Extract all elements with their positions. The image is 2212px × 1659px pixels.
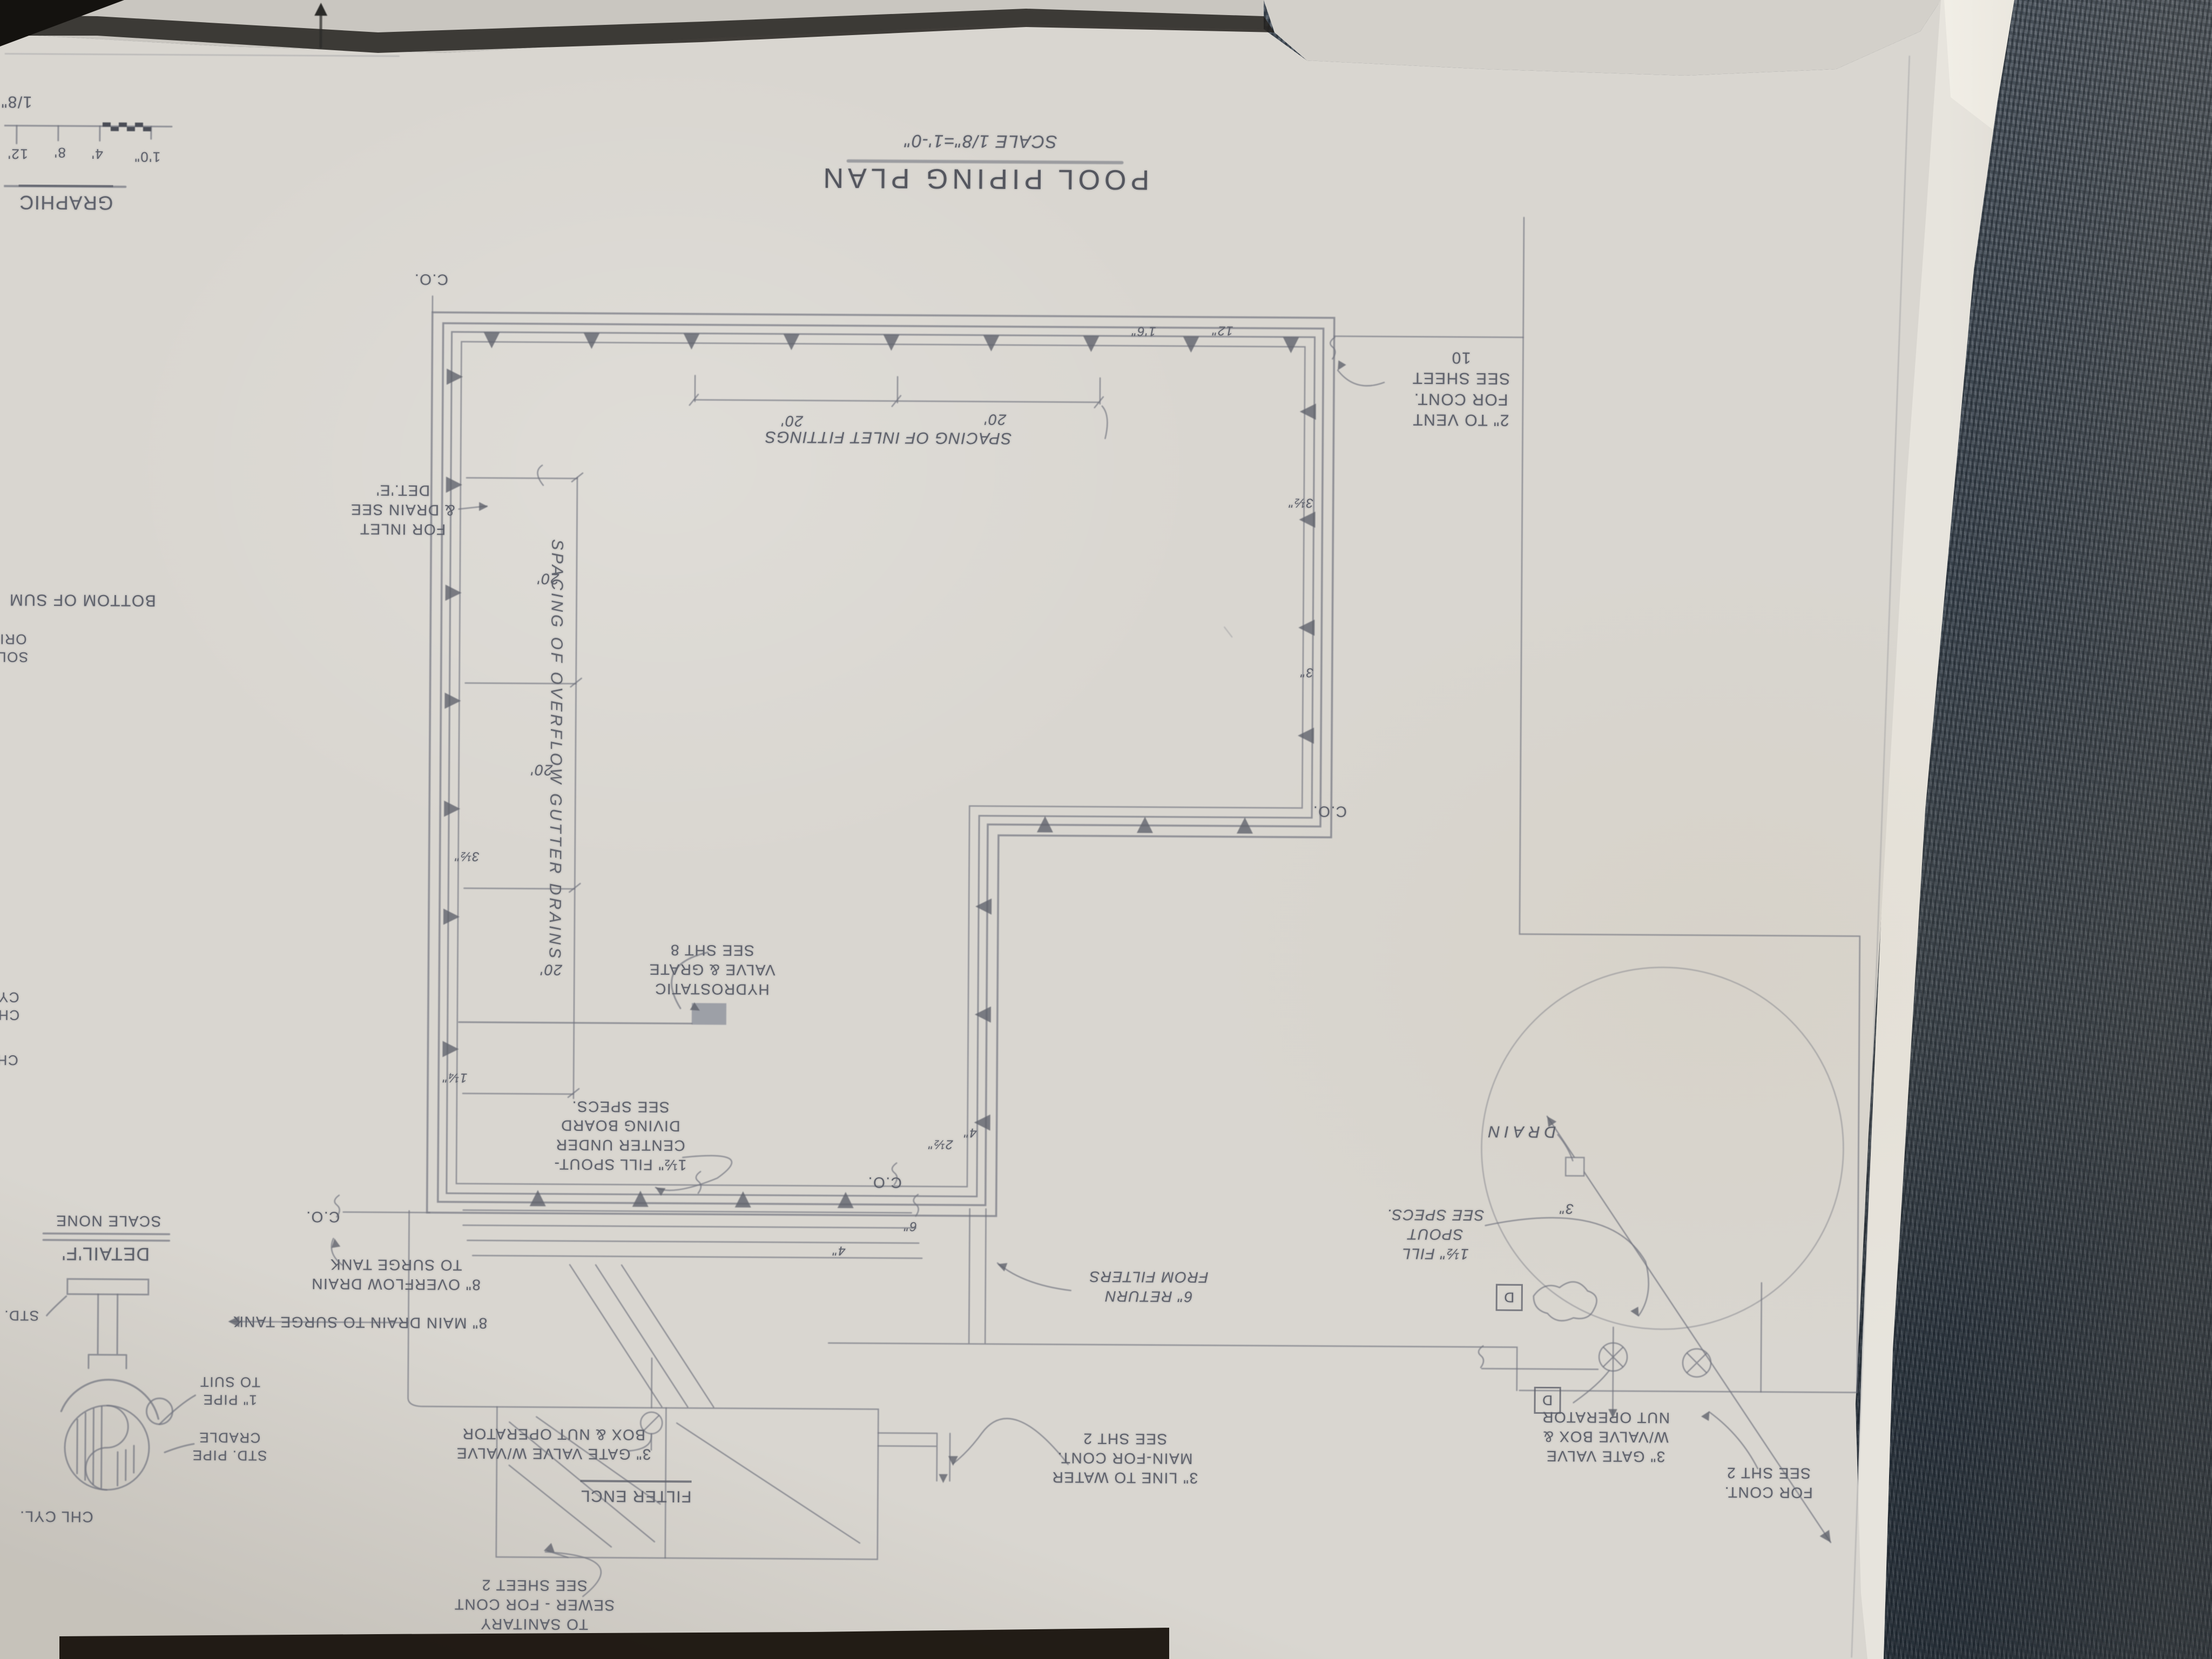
note-cleanout: C.O.	[1312, 801, 1347, 821]
note-sanitary: TO SANITARY SEWER - FOR CONT SEE SHEET 2	[454, 1575, 615, 1634]
note-for-cont: FOR CONT. SEE SHT 2	[1724, 1463, 1813, 1502]
scale-tick-12: 12'	[7, 145, 28, 163]
note-vent: 2" TO VENT FOR CONT. SEE SHEET 10	[1412, 347, 1510, 430]
dim-spacing-gutters: SPACING OF OVERFLOW GUTTER DRAINS	[545, 539, 566, 961]
note-overflow-drain: 8" OVERFLOW DRAIN TO SURGE TANK	[311, 1255, 481, 1294]
note-inlet-detail: FOR INLET & DRAIN SEE DET.'E'	[350, 481, 455, 539]
note-filter-encl: FILTER ENCL	[580, 1480, 691, 1507]
detail-marker-d: D	[1534, 1387, 1561, 1414]
detail-f-scale: SCALE NONE	[56, 1211, 161, 1231]
note-hydrostatic: HYDROSTATIC VALVE & GRATE SEE SHT 8	[649, 940, 775, 999]
note-fill-spout-diving: 1½" FILL SPOUT- CENTER UNDER DIVING BOAR…	[554, 1096, 687, 1175]
detail-marker-d: D	[1496, 1284, 1523, 1311]
detail-f-cylinder: CHL CYL.	[19, 1507, 93, 1527]
note-drain: DRAIN	[1484, 1121, 1556, 1142]
dim-20ft: 20'	[984, 410, 1006, 429]
leader-arrowheads	[227, 354, 1843, 1563]
edge-fragment-bottom-of: BOTTOM OF SUM	[9, 589, 156, 610]
pipe-size: 3½"	[1288, 494, 1313, 511]
pipe-size: 3½"	[454, 847, 480, 864]
pipe-size: 12"	[1212, 322, 1233, 339]
pipe-size: 3"	[1300, 664, 1313, 680]
pipe-squiggles	[334, 331, 1490, 1367]
drawing-upside-down: POOL PIPING PLAN SCALE 1/8"=1'-0" GRAPHI…	[0, 0, 2212, 1659]
note-cleanout: C.O.	[867, 1172, 902, 1192]
note-gate-valve-right: 3" GATE VALVE W/VALVE BOX & NUT OPERATOR	[1541, 1407, 1670, 1466]
detail-f-drawing	[42, 1233, 196, 1491]
scale-tick-1-0: 1'0"	[134, 147, 160, 166]
bottom-left-pipes	[230, 1204, 986, 1410]
top-sheet-arrow	[314, 3, 328, 47]
dim-20ft: 20'	[781, 411, 803, 430]
edge-fragment-sol-ori: SOL ORI	[0, 630, 28, 666]
scale-tick-4: 4'	[91, 145, 103, 163]
dim-20ft: 20'	[530, 760, 552, 780]
graphic-scale-fraction: 1/8"	[1, 91, 32, 112]
pipe-size: 6"	[903, 1217, 917, 1234]
dim-20ft: 20'	[537, 569, 559, 589]
inlet-arrows	[442, 332, 1317, 1211]
note-fill-spout-right: 1½" FILL SPOUT SEE SPECS.	[1386, 1205, 1484, 1264]
note-cleanout: C.O.	[414, 269, 448, 289]
pipe-size: 1¼"	[442, 1069, 468, 1085]
pipe-size: 3"	[1559, 1200, 1574, 1218]
sheet-title: POOL PIPING PLAN	[819, 159, 1149, 197]
detail-f-name: DETAIL'F'	[61, 1241, 150, 1265]
pipe-size: 1'6"	[1131, 322, 1156, 339]
dim-20ft: 20'	[540, 960, 562, 980]
note-gate-valve-left: 3" GATE VALVE W/VALVE BOX & NUT OPERATOR	[456, 1424, 651, 1464]
note-cleanout: C.O.	[306, 1207, 340, 1226]
graphic-scale-caption: GRAPHIC	[19, 185, 113, 215]
detail-f-pipe-note: 1" PIPE TO SUIT	[199, 1373, 260, 1409]
edge-fragment-ch: CH	[0, 1051, 18, 1069]
pipe-size: 4"	[832, 1242, 846, 1259]
scale-tick-8: 8'	[53, 143, 66, 161]
note-return-filters: 6" RETURN FROM FILTERS	[1089, 1267, 1209, 1306]
pipe-size: 2½"	[928, 1136, 953, 1152]
photo-of-blueprint: POOL PIPING PLAN SCALE 1/8"=1'-0" GRAPHI…	[0, 0, 2212, 1659]
blueprint-linework	[0, 0, 2212, 1659]
edge-fragment-ch-cy: CH CY	[0, 988, 19, 1024]
detail-f-cradle-note: STD. PIPE CRADLE	[192, 1428, 267, 1464]
note-water-main: 3" LINE TO WATER MAIN-FOR CONT. SEE SHT …	[1051, 1429, 1198, 1488]
sheet-title-scale: SCALE 1/8"=1'-0"	[904, 130, 1057, 153]
pipe-size: 4"	[963, 1124, 977, 1141]
detail-f-std: STD.	[4, 1306, 39, 1325]
note-main-drain: 8" MAIN DRAIN TO SURGE TANK	[233, 1312, 488, 1333]
